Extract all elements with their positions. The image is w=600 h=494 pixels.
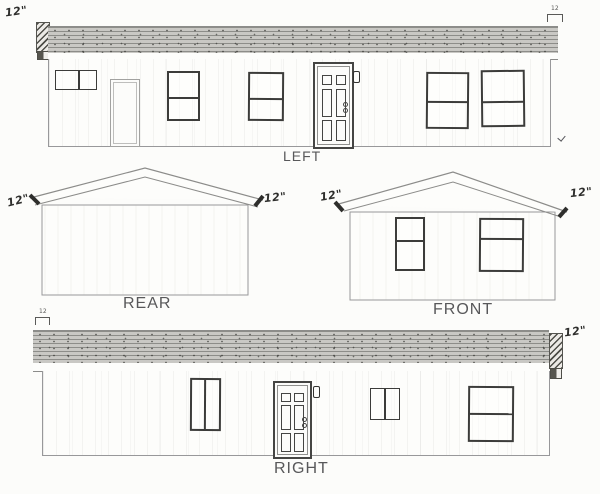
door-panel <box>322 75 332 85</box>
window-sash-divider <box>168 97 199 99</box>
right-elevation-window-3 <box>468 386 514 442</box>
front-roof-outer-line <box>335 172 567 212</box>
door-panel <box>294 393 304 402</box>
rear-roof-outer-line <box>30 168 263 200</box>
window-sash-divider <box>396 240 424 242</box>
rear-elevation-wall <box>42 205 248 295</box>
right-elevation-window-2 <box>370 388 400 420</box>
front-elevation-window-2 <box>479 218 524 272</box>
window-sash-divider <box>480 238 523 240</box>
stray-check-mark <box>557 133 565 142</box>
rear-elevation-drawing <box>0 160 300 310</box>
window-sash-divider <box>482 101 524 103</box>
left-elevation-window-1 <box>55 70 97 90</box>
door-panel <box>281 405 291 430</box>
door-knob <box>302 417 307 422</box>
window-mullion <box>204 379 206 430</box>
window-mullion <box>384 388 386 420</box>
left-elevation-roof-shingles <box>48 26 558 54</box>
right-elevation-roof-shingles <box>33 330 549 364</box>
front-elevation-label: FRONT <box>433 301 493 319</box>
rear-right-eave-mark <box>255 196 263 206</box>
right-elevation-label: RIGHT <box>274 460 329 478</box>
right-elevation-dim-bracket <box>35 317 50 325</box>
left-elevation-window-3 <box>248 72 284 121</box>
left-elevation-dim-bracket <box>547 14 563 22</box>
left-elevation-overhang-annotation: 12" <box>4 3 28 19</box>
window-sash-divider <box>427 101 468 103</box>
door-panel <box>336 75 346 85</box>
front-elevation-drawing <box>315 165 600 315</box>
rear-right-overhang-annotation: 12" <box>263 190 287 205</box>
window-mullion <box>78 70 80 90</box>
right-elevation-hatched-eave-end <box>549 333 563 369</box>
right-elevation-window-1 <box>190 378 221 431</box>
front-elevation-window-1 <box>395 217 425 271</box>
left-elevation-dim-label: 12 <box>551 6 559 12</box>
door-panel <box>336 120 346 141</box>
left-elevation-window-4 <box>426 72 469 129</box>
right-elevation-overhang-annotation: 12" <box>563 323 587 339</box>
left-elevation-window-5 <box>481 70 526 127</box>
door-inner-outline <box>113 82 137 144</box>
door-panel <box>322 89 332 117</box>
door-knob <box>302 423 307 428</box>
elevation-drawing-sheet: 12" 12 LEFT <box>0 0 600 494</box>
door-knob <box>343 108 348 113</box>
left-elevation-porch-light <box>353 71 360 83</box>
left-elevation-entry-door <box>313 62 354 149</box>
left-elevation-window-2 <box>167 71 200 121</box>
front-elevation-wall <box>350 212 555 300</box>
right-elevation-dim-label: 12 <box>39 309 47 315</box>
door-knob <box>343 102 348 107</box>
right-elevation-porch-light <box>313 386 320 398</box>
rear-elevation-label: REAR <box>123 295 171 313</box>
front-right-overhang-annotation: 12" <box>569 185 593 200</box>
window-sash-divider <box>469 413 513 415</box>
door-panel <box>281 433 291 452</box>
right-elevation-eave-foot <box>550 368 562 379</box>
right-elevation-entry-door <box>273 381 312 459</box>
door-panel <box>322 120 332 141</box>
window-sash-divider <box>249 98 283 100</box>
door-panel <box>294 433 304 452</box>
left-elevation-back-door <box>110 79 140 147</box>
door-panel <box>281 393 291 402</box>
